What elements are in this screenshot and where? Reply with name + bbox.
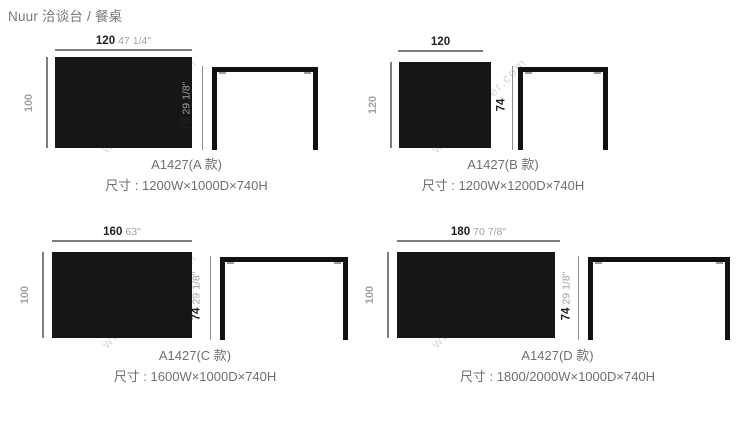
leg-bracket [219,72,226,74]
height-dimension-label: 74 [492,60,510,150]
table-side-view-right-leg [725,257,730,340]
table-side-view-right-leg [343,257,348,340]
depth-dimension-label: 100 [20,57,38,148]
model-size: 尺寸 : 1200W×1200D×740H [398,175,608,194]
height-value: 74 29 1/8" [190,272,202,321]
width-inch-value: 70 7/8" [473,226,506,238]
width-dimension-line [398,50,483,52]
leg-bracket [525,72,532,74]
height-cm-value: 74 [560,308,572,321]
width-dimension-label: 120 47 1/4" [55,35,192,47]
height-dimension-label: 74 29 1/8" [186,250,206,342]
model-name: A1427(D 款) [420,345,695,364]
depth-cm-value: 100 [19,286,31,304]
tabletop-top-view [397,252,555,338]
table-side-view-left-leg [518,67,523,150]
table-side-view-top [220,257,348,262]
height-value: 74 29 1/8" [560,272,572,321]
spec-sheet: Nuur 洽谈台 / 餐桌 www.onsuner.com www.onsune… [0,0,750,430]
height-cm-value: 74 [190,308,202,321]
height-dimension-line [512,66,513,150]
height-dimension-line [578,256,579,340]
page-title: Nuur 洽谈台 / 餐桌 [8,5,122,25]
table-side-view-right-leg [313,67,318,150]
leg-bracket [227,262,234,264]
depth-dimension-label: 100 [361,252,379,338]
leg-bracket [304,72,311,74]
depth-dimension-line [387,252,389,338]
leg-bracket [716,262,723,264]
depth-cm-value: 100 [364,286,376,304]
height-inch-value: 29 1/8" [190,272,202,305]
table-side-view-left-leg [212,67,217,150]
height-inch-value: 29 1/8" [560,272,572,305]
tabletop-top-view [52,252,192,338]
width-inch-value: 63" [125,226,140,238]
width-cm-value: 180 [451,226,470,238]
width-dimension-line [55,49,192,51]
width-dimension-label: 120 [398,36,483,48]
table-side-view-top [212,67,318,72]
depth-cm-value: 120 [367,96,379,114]
table-side-view-left-leg [220,257,225,340]
model-size: 尺寸 : 1800/2000W×1000D×740H [420,366,695,385]
depth-dimension-label: 100 [16,252,34,338]
width-dimension-line [397,240,560,242]
width-dimension-label: 160 63" [52,226,192,238]
width-cm-value: 120 [96,35,115,47]
depth-dimension-line [42,252,44,338]
height-value: 74 29 1/8" [180,82,192,131]
height-dimension-line [210,256,211,340]
height-cm-value: 74 [180,118,192,131]
width-dimension-label: 180 70 7/8" [397,226,560,238]
depth-dimension-line [46,57,48,148]
height-dimension-label: 74 29 1/8" [556,250,576,342]
height-dimension-line [202,66,203,150]
width-inch-value: 47 1/4" [118,35,151,47]
height-inch-value: 29 1/8" [180,82,192,115]
tabletop-top-view [399,62,491,148]
model-size: 尺寸 : 1600W×1000D×740H [45,366,345,385]
leg-bracket [595,262,602,264]
leg-bracket [334,262,341,264]
table-side-view-left-leg [588,257,593,340]
depth-dimension-label: 120 [364,62,382,148]
model-size: 尺寸 : 1200W×1000D×740H [55,175,318,194]
width-dimension-line [52,240,192,242]
leg-bracket [594,72,601,74]
model-name: A1427(A 款) [55,154,318,173]
width-cm-value: 160 [103,226,122,238]
depth-cm-value: 100 [23,93,35,111]
height-cm-value: 74 [495,99,507,112]
table-side-view-right-leg [603,67,608,150]
model-name: A1427(B 款) [398,154,608,173]
model-name: A1427(C 款) [45,345,345,364]
height-dimension-label: 74 29 1/8" [176,60,196,152]
table-side-view-top [588,257,730,262]
height-value: 74 [495,99,507,112]
width-cm-value: 120 [431,36,450,48]
tabletop-top-view [55,57,192,148]
depth-dimension-line [390,62,392,148]
